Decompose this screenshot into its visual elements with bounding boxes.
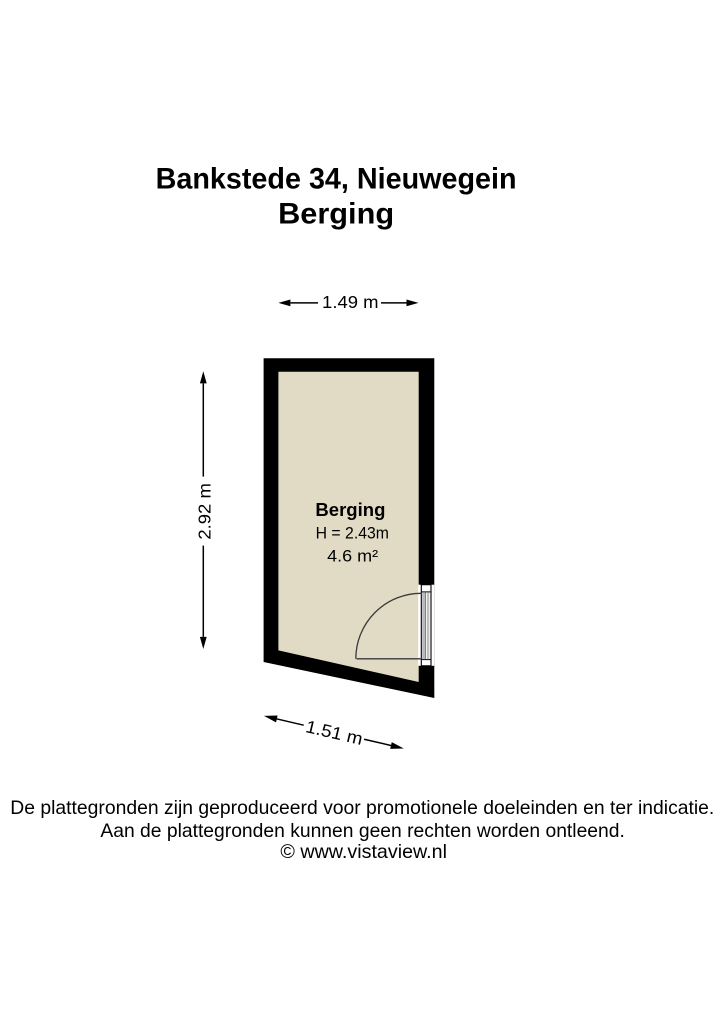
svg-text:Berging: Berging <box>278 198 394 231</box>
svg-text:De plattegronden zijn geproduc: De plattegronden zijn geproduceerd voor … <box>10 797 714 819</box>
svg-text:H = 2.43m: H = 2.43m <box>316 524 389 543</box>
svg-text:Bankstede 34, Nieuwegein: Bankstede 34, Nieuwegein <box>156 162 517 195</box>
svg-text:4.6 m²: 4.6 m² <box>327 546 378 565</box>
svg-text:Aan de plattegronden kunnen ge: Aan de plattegronden kunnen geen rechten… <box>100 820 625 842</box>
svg-text:© www.vistaview.nl: © www.vistaview.nl <box>280 841 447 863</box>
svg-text:1.49 m: 1.49 m <box>322 292 379 312</box>
svg-text:2.92 m: 2.92 m <box>195 483 215 539</box>
svg-text:Berging: Berging <box>315 499 385 520</box>
